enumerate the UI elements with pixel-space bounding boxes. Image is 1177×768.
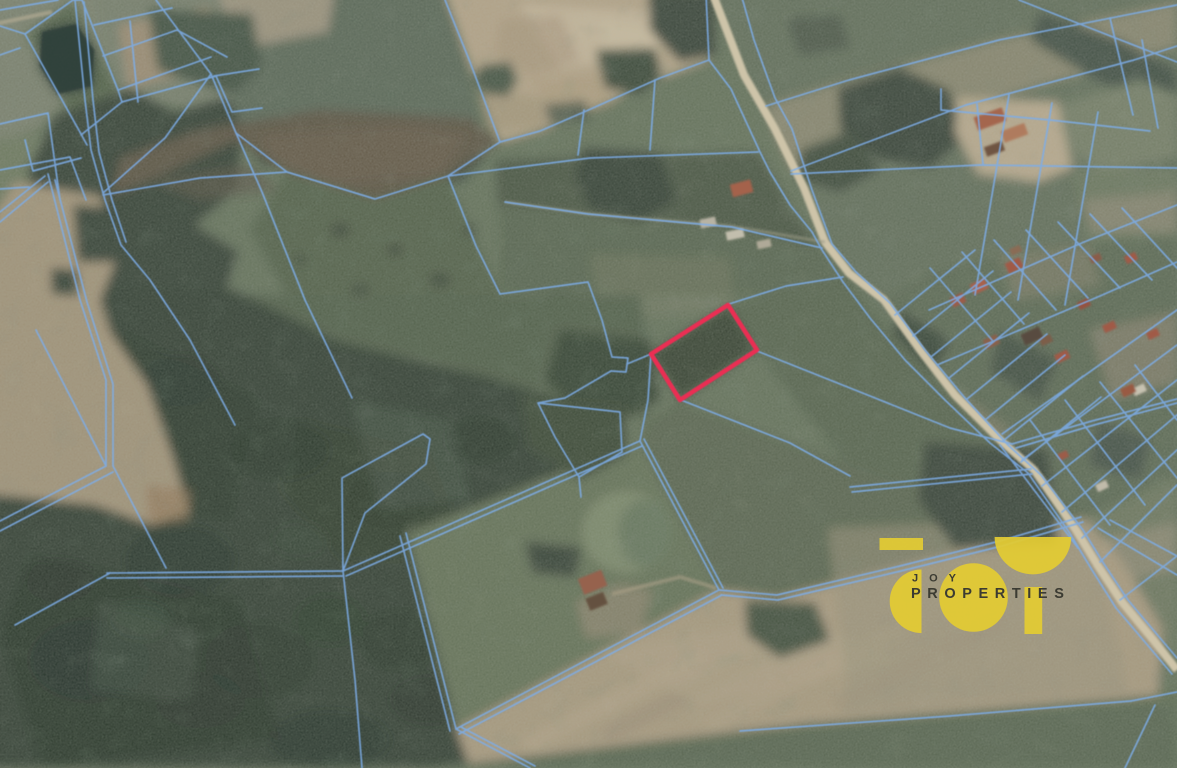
svg-text:JOY: JOY [912,573,967,585]
svg-text:PROPERTIES: PROPERTIES [911,586,1070,602]
